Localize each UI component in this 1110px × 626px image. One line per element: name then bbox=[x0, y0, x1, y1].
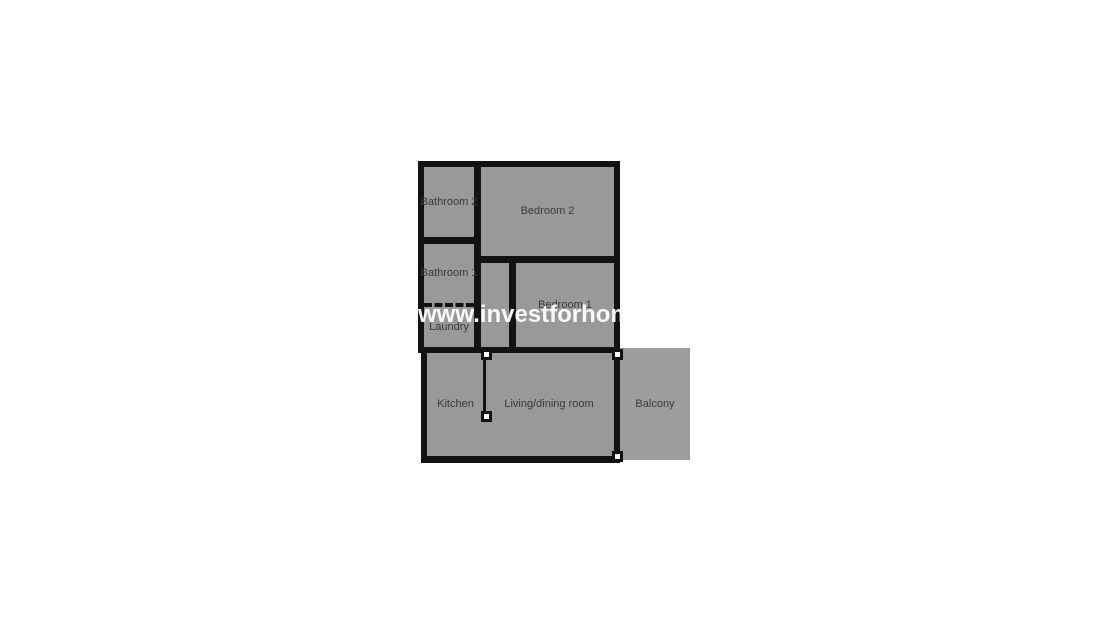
room-label-bathroom-1: Bathroom 1 bbox=[421, 267, 478, 279]
room-label-balcony: Balcony bbox=[635, 398, 674, 410]
floor-plan: Bathroom 2 Bedroom 2 Bathroom 1 Laundry … bbox=[418, 161, 690, 463]
room-kitchen: Kitchen bbox=[427, 353, 484, 456]
room-bathroom-2: Bathroom 2 bbox=[424, 167, 474, 237]
bathroom1-laundry-column: Bathroom 1 Laundry bbox=[424, 244, 474, 347]
room-balcony: Balcony bbox=[620, 348, 690, 460]
floor-plan-canvas: Bathroom 2 Bedroom 2 Bathroom 1 Laundry … bbox=[0, 0, 1110, 626]
wall-junction-marker bbox=[612, 451, 623, 462]
room-living-dining: Living/dining room bbox=[484, 353, 614, 456]
kitchen-divider-line bbox=[483, 354, 486, 416]
balcony-zone: Balcony bbox=[620, 348, 690, 460]
room-bedroom-2: Bedroom 2 bbox=[481, 167, 614, 256]
wall-junction-marker bbox=[612, 349, 623, 360]
room-label-living-dining: Living/dining room bbox=[504, 398, 593, 410]
room-bathroom-1: Bathroom 1 bbox=[424, 244, 474, 303]
kitchen-living-area: Kitchen Living/dining room bbox=[427, 353, 614, 456]
watermark-text: www.investforhom bbox=[418, 301, 620, 329]
room-label-kitchen: Kitchen bbox=[437, 398, 474, 410]
room-label-bedroom-2: Bedroom 2 bbox=[521, 205, 575, 217]
wall-junction-marker bbox=[481, 411, 492, 422]
wall-junction-marker bbox=[481, 349, 492, 360]
room-label-bathroom-2: Bathroom 2 bbox=[421, 196, 478, 208]
